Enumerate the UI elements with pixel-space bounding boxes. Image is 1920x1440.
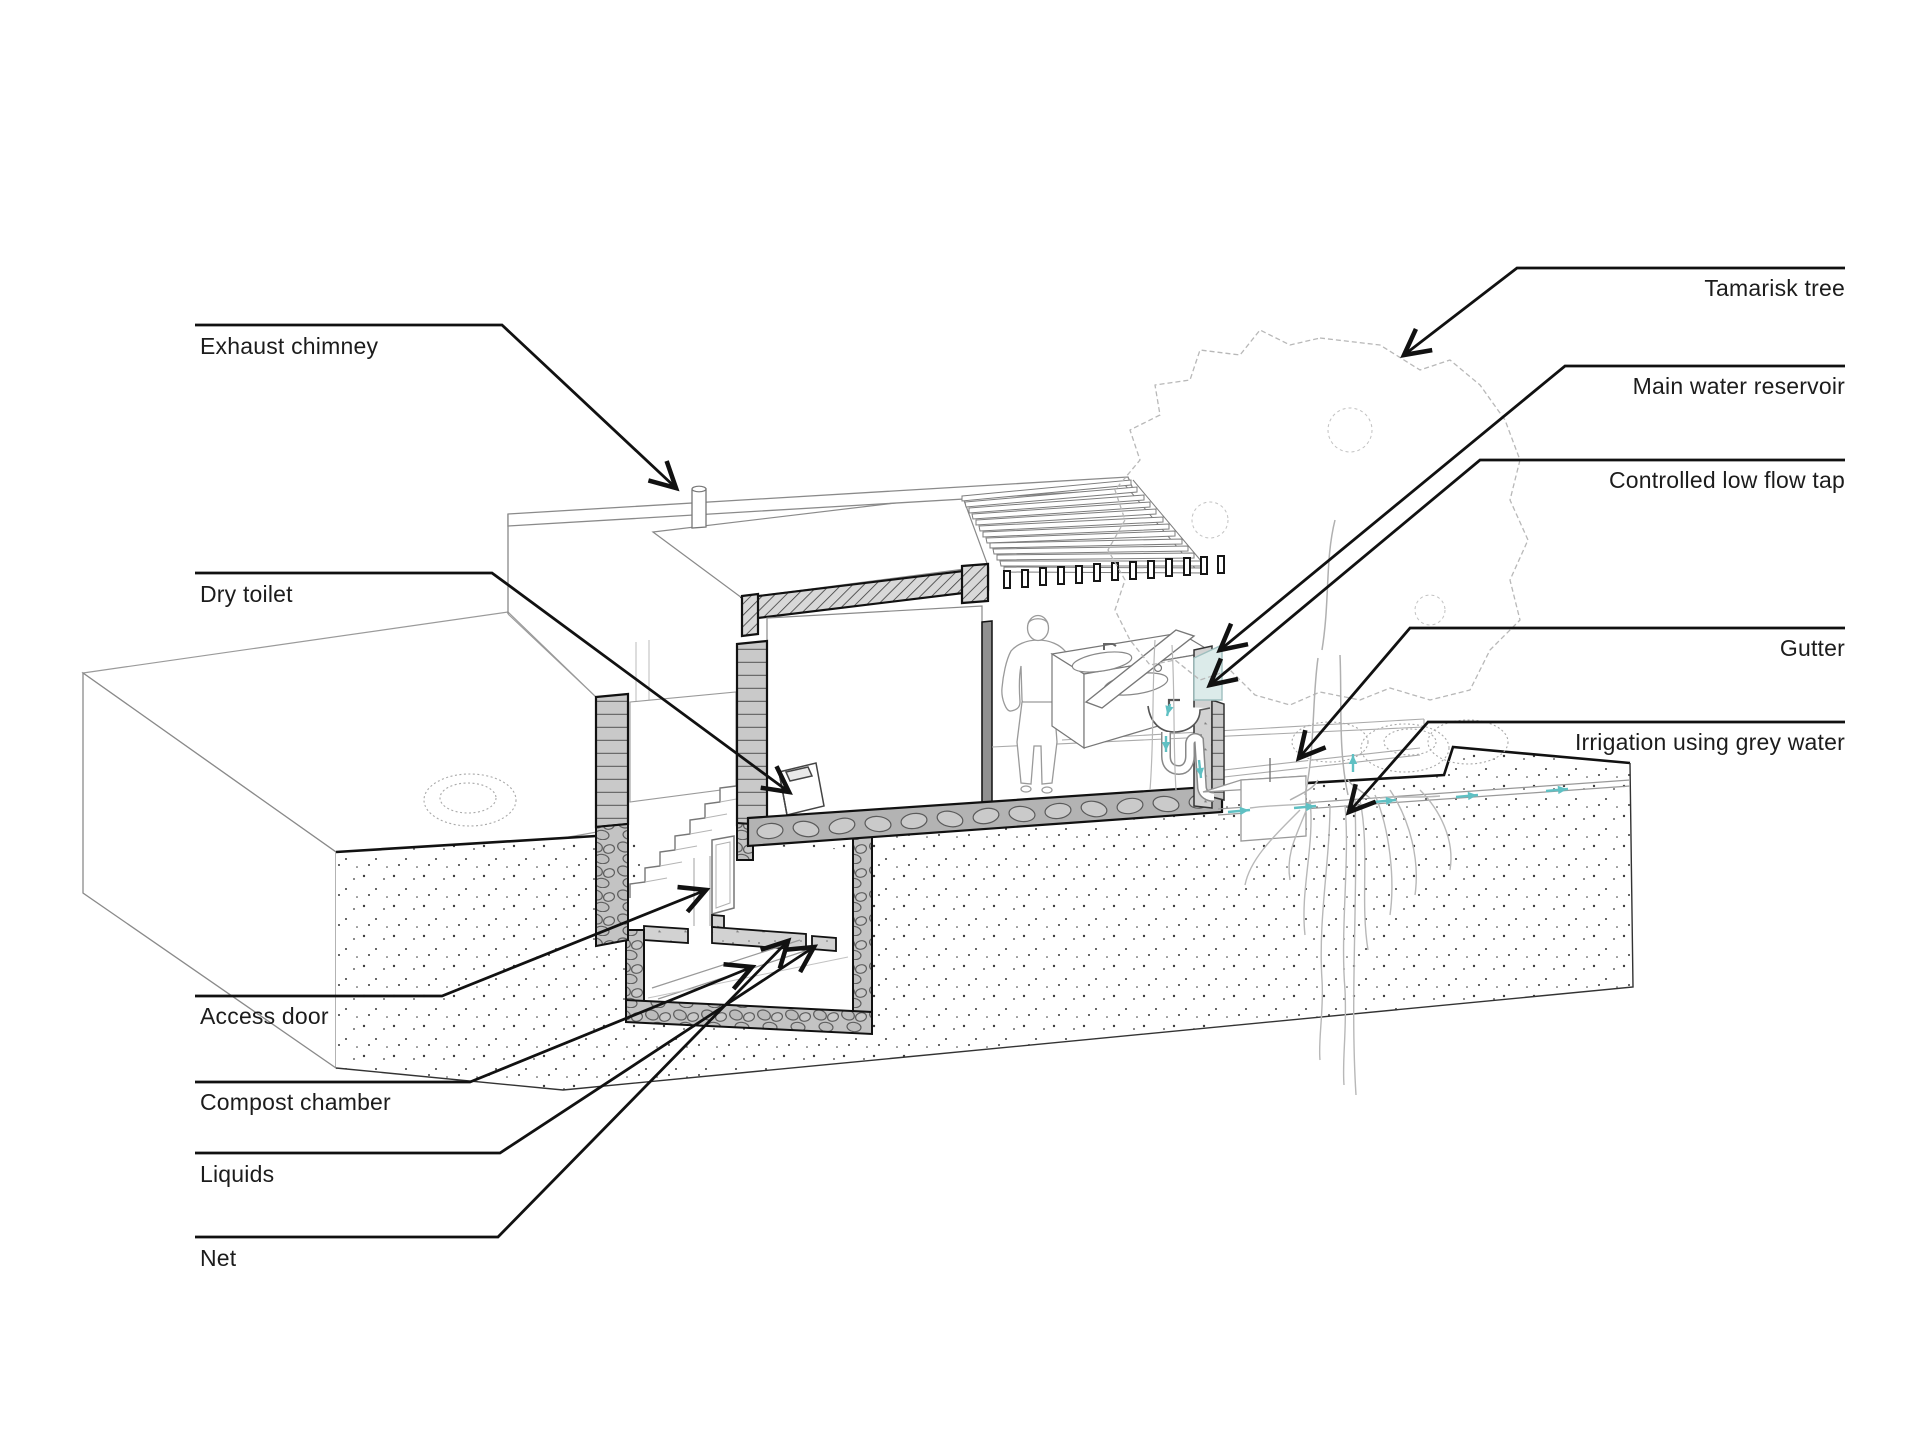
chamber-left-wall [626,930,644,1004]
exhaust-chimney-pipe [692,486,706,528]
sink-wall-brick-face [1212,700,1224,800]
canopy-detail-1 [1192,502,1228,538]
label-tamarisk-tree: Tamarisk tree [1704,276,1845,301]
toilet-wall-brick [737,641,767,825]
garden-wall-brick [596,694,628,827]
stairwell-upper-wall [630,692,736,802]
canopy-detail-2 [1328,408,1372,452]
label-controlled-low-flow-tap: Controlled low flow tap [1609,468,1845,493]
label-liquids: Liquids [200,1162,274,1187]
label-net: Net [200,1246,236,1271]
label-gutter: Gutter [1780,636,1845,661]
canopy-detail-3 [1415,595,1445,625]
doorway-cut-jamb [982,621,992,809]
label-main-water-reservoir: Main water reservoir [1633,374,1845,399]
access-door-panel [712,836,734,914]
label-exhaust-chimney: Exhaust chimney [200,334,378,359]
diagram-canvas: Exhaust chimney Dry toilet Access door C… [0,0,1920,1440]
axonometric-section-drawing [0,0,1920,1440]
label-dry-toilet: Dry toilet [200,582,293,607]
label-access-door: Access door [200,1004,329,1029]
chamber-right-wall [853,826,872,1016]
label-compost-chamber: Compost chamber [200,1090,391,1115]
label-irrigation-grey-water: Irrigation using grey water [1575,730,1845,755]
leader-controlled-low-flow-tap [1210,460,1845,685]
sink-unit [1052,630,1224,808]
leader-main-water-reservoir [1220,366,1845,650]
person-pants [1017,702,1057,784]
